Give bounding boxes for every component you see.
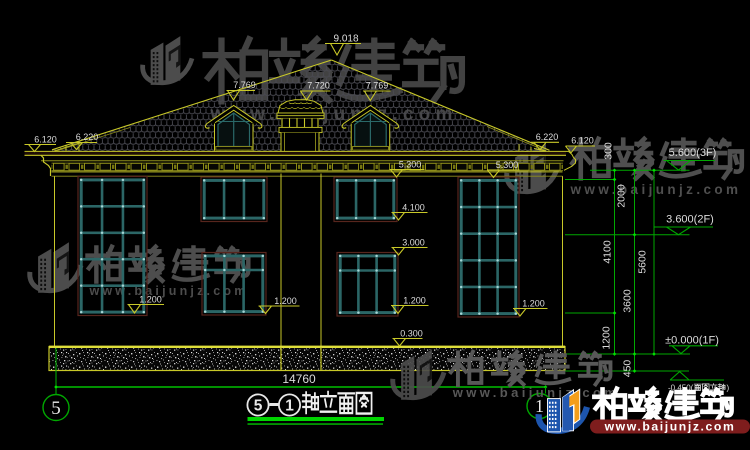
svg-text:7.769: 7.769 xyxy=(233,80,256,90)
svg-text:1.200: 1.200 xyxy=(403,296,426,306)
svg-text:14760: 14760 xyxy=(282,372,316,386)
svg-text:5.300: 5.300 xyxy=(399,160,422,170)
svg-text:7.769: 7.769 xyxy=(366,81,389,91)
svg-text:4100: 4100 xyxy=(602,240,614,264)
svg-text:1: 1 xyxy=(285,398,294,415)
svg-text:5: 5 xyxy=(254,398,263,415)
svg-text:±0.000(1F): ±0.000(1F) xyxy=(665,335,719,347)
svg-text:5.300: 5.300 xyxy=(496,160,519,170)
svg-text:6.120: 6.120 xyxy=(571,136,594,146)
svg-text:5.600(3F): 5.600(3F) xyxy=(669,147,717,159)
svg-text:6.220: 6.220 xyxy=(536,132,559,142)
svg-text:1.200: 1.200 xyxy=(522,299,545,309)
svg-text:7.720: 7.720 xyxy=(307,81,330,91)
svg-text:www.baijunjz.com: www.baijunjz.com xyxy=(604,420,736,434)
svg-text:1200: 1200 xyxy=(601,326,613,350)
svg-text:6.120: 6.120 xyxy=(34,135,57,145)
svg-text:4.100: 4.100 xyxy=(402,203,425,213)
svg-text:9.018: 9.018 xyxy=(333,34,358,45)
svg-text:1.200: 1.200 xyxy=(139,295,162,305)
svg-text:450: 450 xyxy=(622,360,634,378)
svg-text:3.600(2F): 3.600(2F) xyxy=(666,214,714,226)
svg-text:3.000: 3.000 xyxy=(402,238,425,248)
svg-text:0.300: 0.300 xyxy=(400,329,423,339)
svg-text:3600: 3600 xyxy=(622,289,634,313)
svg-text:300: 300 xyxy=(603,142,615,160)
svg-text:5600: 5600 xyxy=(637,250,649,274)
svg-text:): ) xyxy=(727,384,730,393)
svg-text:1.200: 1.200 xyxy=(274,296,297,306)
svg-text:6.220: 6.220 xyxy=(76,132,99,142)
svg-text:www.baijunjz.com: www.baijunjz.com xyxy=(570,182,742,197)
svg-text:2000: 2000 xyxy=(616,184,628,208)
svg-text:5: 5 xyxy=(51,398,61,419)
